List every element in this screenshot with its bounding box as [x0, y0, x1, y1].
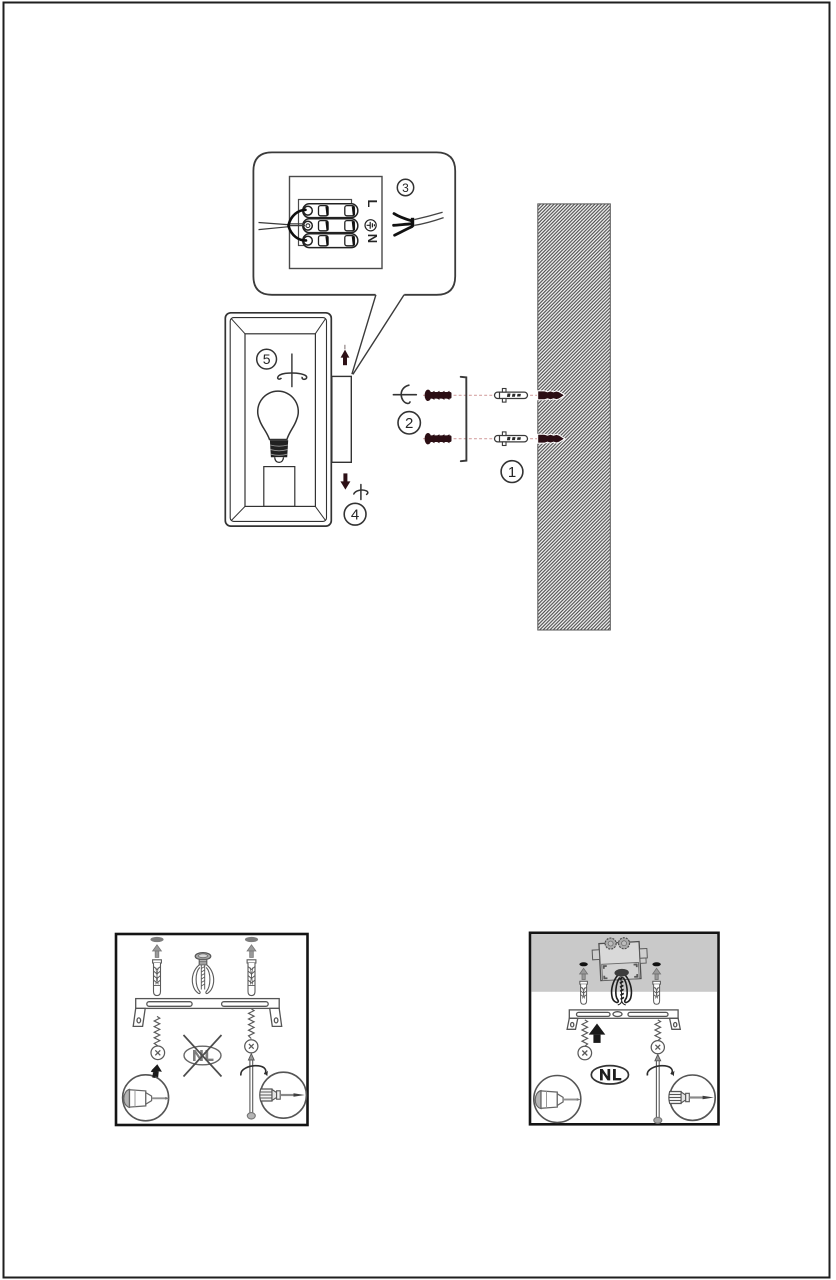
svg-text:3: 3 — [402, 181, 409, 195]
svg-text:5: 5 — [263, 351, 271, 367]
svg-text:N: N — [365, 234, 380, 243]
svg-text:2: 2 — [405, 415, 413, 432]
svg-text:1: 1 — [508, 464, 516, 481]
svg-text:4: 4 — [351, 506, 359, 523]
svg-text:L: L — [365, 200, 380, 208]
